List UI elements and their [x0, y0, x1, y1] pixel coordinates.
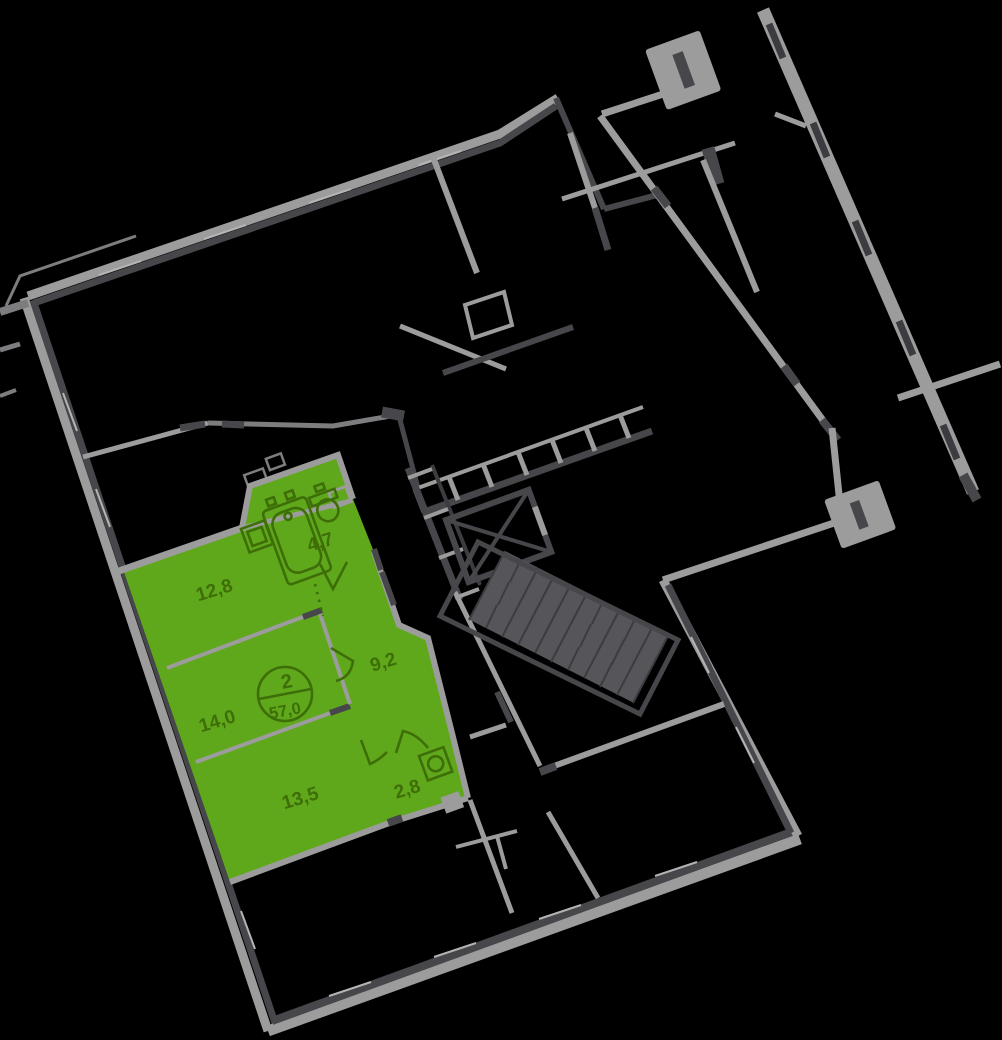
building-exterior-walls — [0, 98, 840, 1031]
floor-plan-canvas: 12,8 14,0 13,5 4,7 9,2 2,8 2 57,0 — [0, 0, 1002, 1040]
floor-plan: 12,8 14,0 13,5 4,7 9,2 2,8 2 57,0 — [0, 0, 1002, 1040]
balcony-right — [824, 480, 896, 549]
balconies — [645, 30, 896, 549]
